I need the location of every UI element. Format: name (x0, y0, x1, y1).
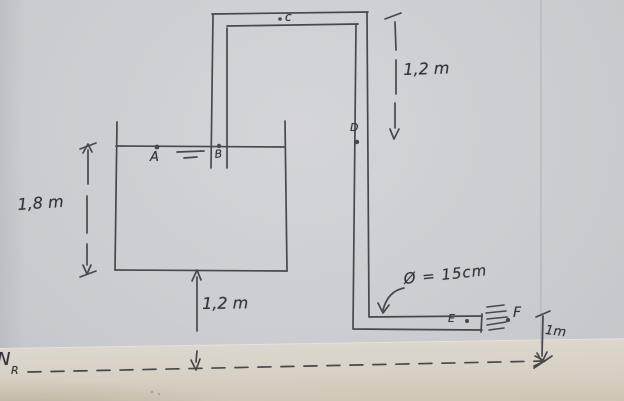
tank-left-wall (115, 122, 117, 270)
dim-tick (385, 13, 401, 19)
dim-arrowhead (390, 129, 399, 139)
point-b-label: B (214, 148, 223, 160)
pencil-sketch (0, 0, 624, 401)
point-e-marker (465, 319, 469, 323)
point-c-label: c (285, 11, 292, 23)
dimension-tank-elevation (191, 270, 201, 370)
datum-label-main: N (0, 351, 10, 369)
hatch-line (487, 305, 504, 307)
diameter-arrow (383, 288, 404, 310)
outlet-hatch (486, 305, 507, 330)
datum-label-subscript: R (11, 365, 19, 376)
pencil-smudge (151, 391, 160, 395)
hatch-line (489, 328, 504, 330)
hatch-line (487, 317, 507, 319)
point-a-label: A (150, 151, 159, 164)
dimension-label-tank-depth: 1,8 m (17, 194, 64, 213)
hatch-line (486, 311, 506, 313)
dim-line (196, 277, 197, 362)
tank-bottom (115, 270, 287, 271)
datum-dashed-line (28, 361, 545, 372)
dim-line (87, 150, 88, 265)
water-surface-symbol (177, 151, 204, 158)
point-d-label: D (350, 122, 358, 133)
point-e-label: E (448, 313, 455, 324)
dimension-label-tank-elevation: 1,2 m (202, 295, 248, 312)
dimension-upper-pipe-drop (385, 13, 401, 139)
dimension-label-upper-pipe-drop: 1,2 m (403, 60, 450, 78)
tank-right-wall (285, 121, 287, 271)
point-f-label: F (513, 306, 521, 320)
diameter-callout (378, 288, 404, 313)
dim-line (395, 22, 396, 128)
pipe-left-leg-outer (211, 15, 213, 168)
point-a-marker (155, 145, 160, 150)
smudge-dot (158, 393, 160, 395)
datum-line-group (28, 356, 545, 372)
point-c-marker (278, 17, 282, 21)
photographed-diagram: A B c D E F 1,2 m 1,8 m 1,2 m Ø = 15cm 1… (0, 0, 624, 401)
water-surface-line (116, 146, 284, 147)
dimension-tank-depth (80, 143, 96, 277)
point-d-marker (355, 140, 359, 144)
dim-line (542, 316, 543, 356)
hatch-line (487, 322, 506, 325)
pipe-top-inner (227, 24, 358, 26)
dimension-label-outlet-height: 1m (544, 324, 566, 339)
smudge-dot (151, 391, 153, 393)
pipe-outlet-cap (481, 314, 482, 332)
tank (115, 121, 287, 271)
